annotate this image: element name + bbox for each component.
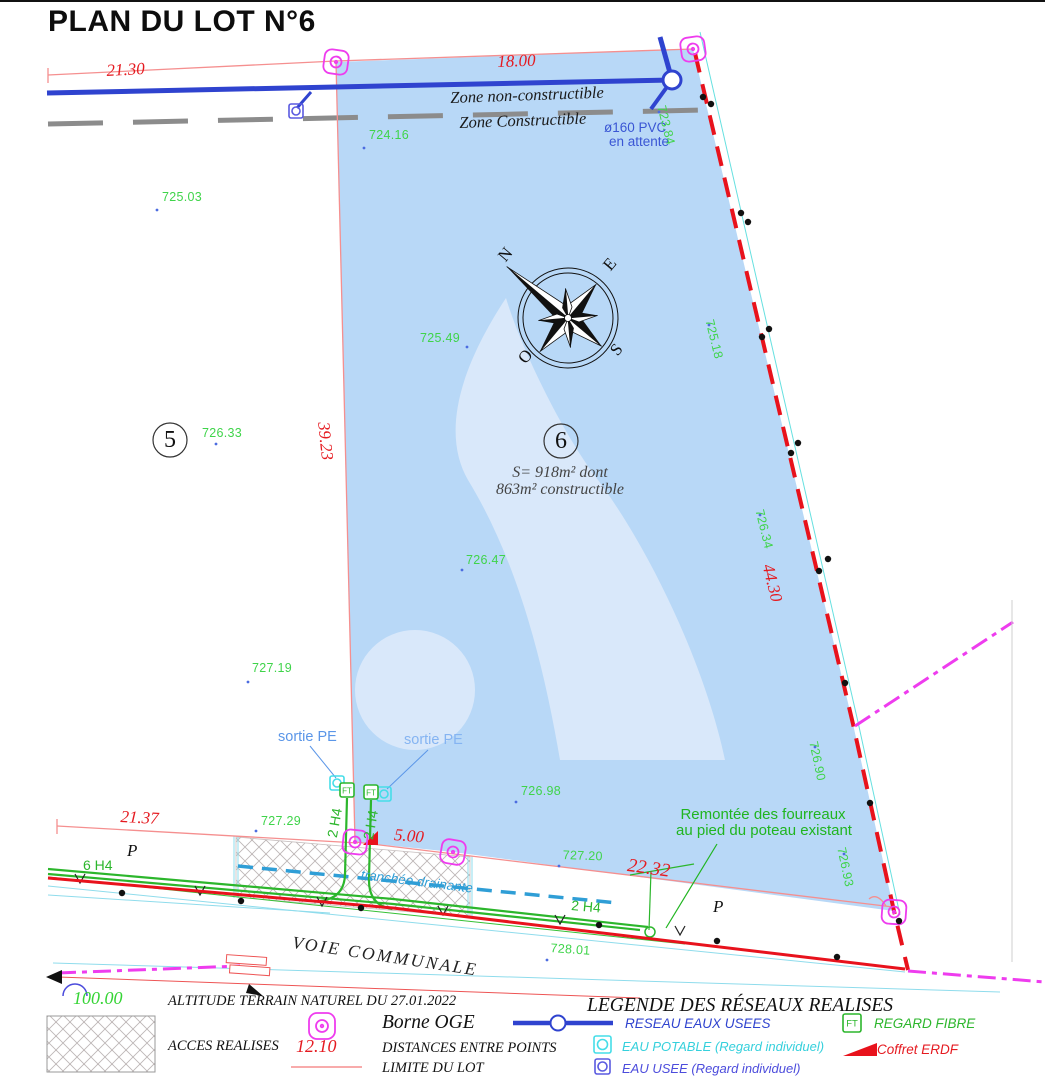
legend-borne-label: Borne OGE <box>382 1012 475 1034</box>
legend-potable-label: EAU POTABLE (Regard individuel) <box>622 1039 824 1054</box>
legend-acces-label: ACCES REALISES <box>168 1038 279 1055</box>
legend-limite-label: LIMITE DU LOT <box>382 1060 484 1077</box>
elevation-label: 727.19 <box>252 661 292 675</box>
eau-usee-icon <box>289 104 303 118</box>
sewer-node-circle <box>663 71 681 89</box>
elevation-label: 725.03 <box>162 190 202 204</box>
legend-erdf-label: Coffret ERDF <box>877 1042 958 1057</box>
measure-18-00: 18.00 <box>497 51 536 72</box>
elevation-label: 726.98 <box>521 784 561 798</box>
lot6-area-line2: 863m² constructible <box>496 481 624 499</box>
elevation-label: 726.33 <box>202 426 242 440</box>
lot5-number: 5 <box>160 427 180 454</box>
measure-5-00: 5.00 <box>393 825 424 848</box>
elevation-label: 727.20 <box>563 848 604 863</box>
legend-distance-value: 12.10 <box>296 1036 337 1057</box>
sortie-pe-label-1: sortie PE <box>278 729 337 745</box>
legend-usee-label: EAU USEE (Regard individuel) <box>622 1061 800 1076</box>
page-title: PLAN DU LOT N°6 <box>48 5 316 39</box>
elevation-label: 727.29 <box>261 814 301 828</box>
pvc-note-line1: ø160 PVC <box>604 120 666 135</box>
elevation-label: 724.16 <box>369 128 409 142</box>
remontee-point-circle <box>645 927 655 937</box>
remontee-label-line1: Remontée des fourreaux <box>680 806 845 823</box>
sortie-pe-label-2: sortie PE <box>404 732 463 748</box>
legend-distance-label: DISTANCES ENTRE POINTS <box>382 1040 557 1057</box>
lot6-parcel-fill <box>336 49 894 911</box>
elevation-label: 726.47 <box>466 553 506 567</box>
site-plan: FT FT <box>0 0 1045 1080</box>
measure-39-23: 39.23 <box>313 421 337 461</box>
svg-text:FT: FT <box>366 789 376 798</box>
elevation-label: 725.49 <box>420 331 460 345</box>
svg-text:FT: FT <box>846 1019 858 1030</box>
parcel-letter-right: P <box>713 897 723 917</box>
plan-drawing: FT FT <box>0 0 1045 1080</box>
measure-21-30: 21.30 <box>106 59 145 81</box>
lot6-number: 6 <box>551 428 571 455</box>
conduit-2h4-label-3: 2 H4 <box>571 897 602 916</box>
lot6-area-line1: S= 918m² dont <box>512 464 608 482</box>
parcel-letter-left: P <box>127 841 137 861</box>
legend-fibre-label: REGARD FIBRE <box>874 1016 975 1031</box>
remontee-label-line2: au pied du poteau existant <box>676 822 852 839</box>
legend-altitude-value: 100.00 <box>73 988 123 1009</box>
measure-21-37: 21.37 <box>120 807 159 829</box>
pvc-note-line2: en attente <box>609 134 669 149</box>
svg-text:FT: FT <box>342 787 352 796</box>
legend-reseau-label: RESEAU EAUX USEES <box>625 1016 771 1031</box>
elevation-label: 728.01 <box>550 941 591 958</box>
legend-altitude-label: ALTITUDE TERRAIN NATUREL DU 27.01.2022 <box>168 993 456 1010</box>
legend-title: LEGENDE DES RÉSEAUX REALISES <box>587 995 893 1017</box>
hedge-6h4-label: 6 H4 <box>83 857 113 873</box>
